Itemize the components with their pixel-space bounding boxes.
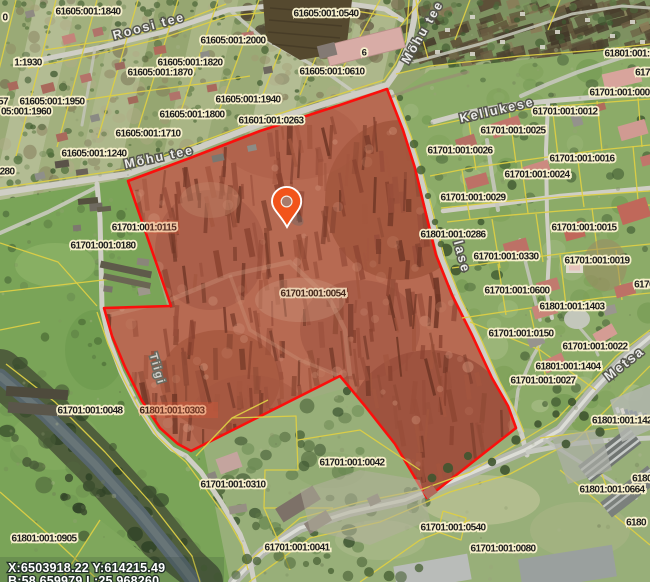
svg-text:61701:001:0029: 61701:001:0029 (441, 193, 507, 204)
svg-text:61701:001:0016: 61701:001:0016 (550, 154, 616, 165)
svg-text:61701:001:0048: 61701:001:0048 (58, 406, 124, 417)
svg-text:61701:001:0027: 61701:001:0027 (511, 376, 577, 387)
svg-text:61701:001:0025: 61701:001:0025 (481, 126, 547, 137)
svg-text:61605:001:2000: 61605:001:2000 (201, 36, 267, 47)
svg-text:6180: 6180 (632, 474, 650, 485)
svg-text:61701:001:0054: 61701:001:0054 (281, 289, 347, 300)
svg-text:61701:001:0026: 61701:001:0026 (428, 146, 494, 157)
svg-text:B:58.659979 L:25.968260: B:58.659979 L:25.968260 (8, 574, 159, 582)
svg-text:6: 6 (362, 48, 367, 59)
svg-text:61701:001:0022: 61701:001:0022 (563, 342, 629, 353)
svg-text:61701:001:0009: 61701:001:0009 (590, 88, 650, 99)
svg-text:61801:001:0664: 61801:001:0664 (580, 485, 646, 496)
svg-text:280: 280 (0, 167, 15, 178)
svg-text:6170: 6170 (635, 68, 650, 79)
svg-text:61801:001:1404: 61801:001:1404 (536, 362, 602, 373)
svg-text:61605:001:0610: 61605:001:0610 (300, 67, 366, 78)
svg-text:6170: 6170 (634, 280, 650, 291)
svg-text:61605:001:1800: 61605:001:1800 (160, 110, 226, 121)
svg-text:61701:001:0180: 61701:001:0180 (71, 241, 137, 252)
svg-text:61701:001:0024: 61701:001:0024 (505, 170, 571, 181)
svg-text:61701:001:0310: 61701:001:0310 (201, 480, 267, 491)
svg-text:61605:001:1870: 61605:001:1870 (128, 68, 194, 79)
svg-text:61605:001:1840: 61605:001:1840 (56, 7, 122, 18)
svg-text:61801:001:142: 61801:001:142 (592, 416, 650, 427)
svg-text:61701:001:0600: 61701:001:0600 (485, 286, 551, 297)
svg-text:61605:001:1940: 61605:001:1940 (216, 95, 282, 106)
svg-text:61701:001:0150: 61701:001:0150 (489, 329, 555, 340)
svg-text:61701:001:0015: 61701:001:0015 (552, 223, 618, 234)
svg-text:61701:001:0330: 61701:001:0330 (474, 252, 540, 263)
svg-text:61701:001:0019: 61701:001:0019 (565, 256, 631, 267)
svg-text:61701:001:0041: 61701:001:0041 (265, 543, 331, 554)
svg-text:61601:001:0263: 61601:001:0263 (239, 116, 305, 127)
svg-text:61801:001:06: 61801:001:06 (604, 49, 650, 60)
svg-text:6180: 6180 (626, 518, 647, 529)
svg-text:61801:001:1403: 61801:001:1403 (540, 302, 606, 313)
svg-text:1:1930: 1:1930 (14, 58, 43, 69)
svg-text:61801:001:0286: 61801:001:0286 (421, 230, 487, 241)
svg-text:61701:001:0540: 61701:001:0540 (421, 523, 487, 534)
svg-text:X:6503918.22 Y:614215.49: X:6503918.22 Y:614215.49 (8, 561, 165, 575)
svg-text:61701:001:0042: 61701:001:0042 (320, 458, 386, 469)
svg-text:61605:001:1710: 61605:001:1710 (116, 129, 182, 140)
svg-text:61701:001:0012: 61701:001:0012 (533, 107, 599, 118)
svg-text:61605:001:0540: 61605:001:0540 (294, 9, 360, 20)
svg-text:61701:001:0080: 61701:001:0080 (471, 544, 537, 555)
svg-text:61801:001:0905: 61801:001:0905 (12, 534, 78, 545)
svg-text:05:001:1960: 05:001:1960 (1, 107, 52, 118)
svg-text:61605:001:1240: 61605:001:1240 (62, 149, 128, 160)
